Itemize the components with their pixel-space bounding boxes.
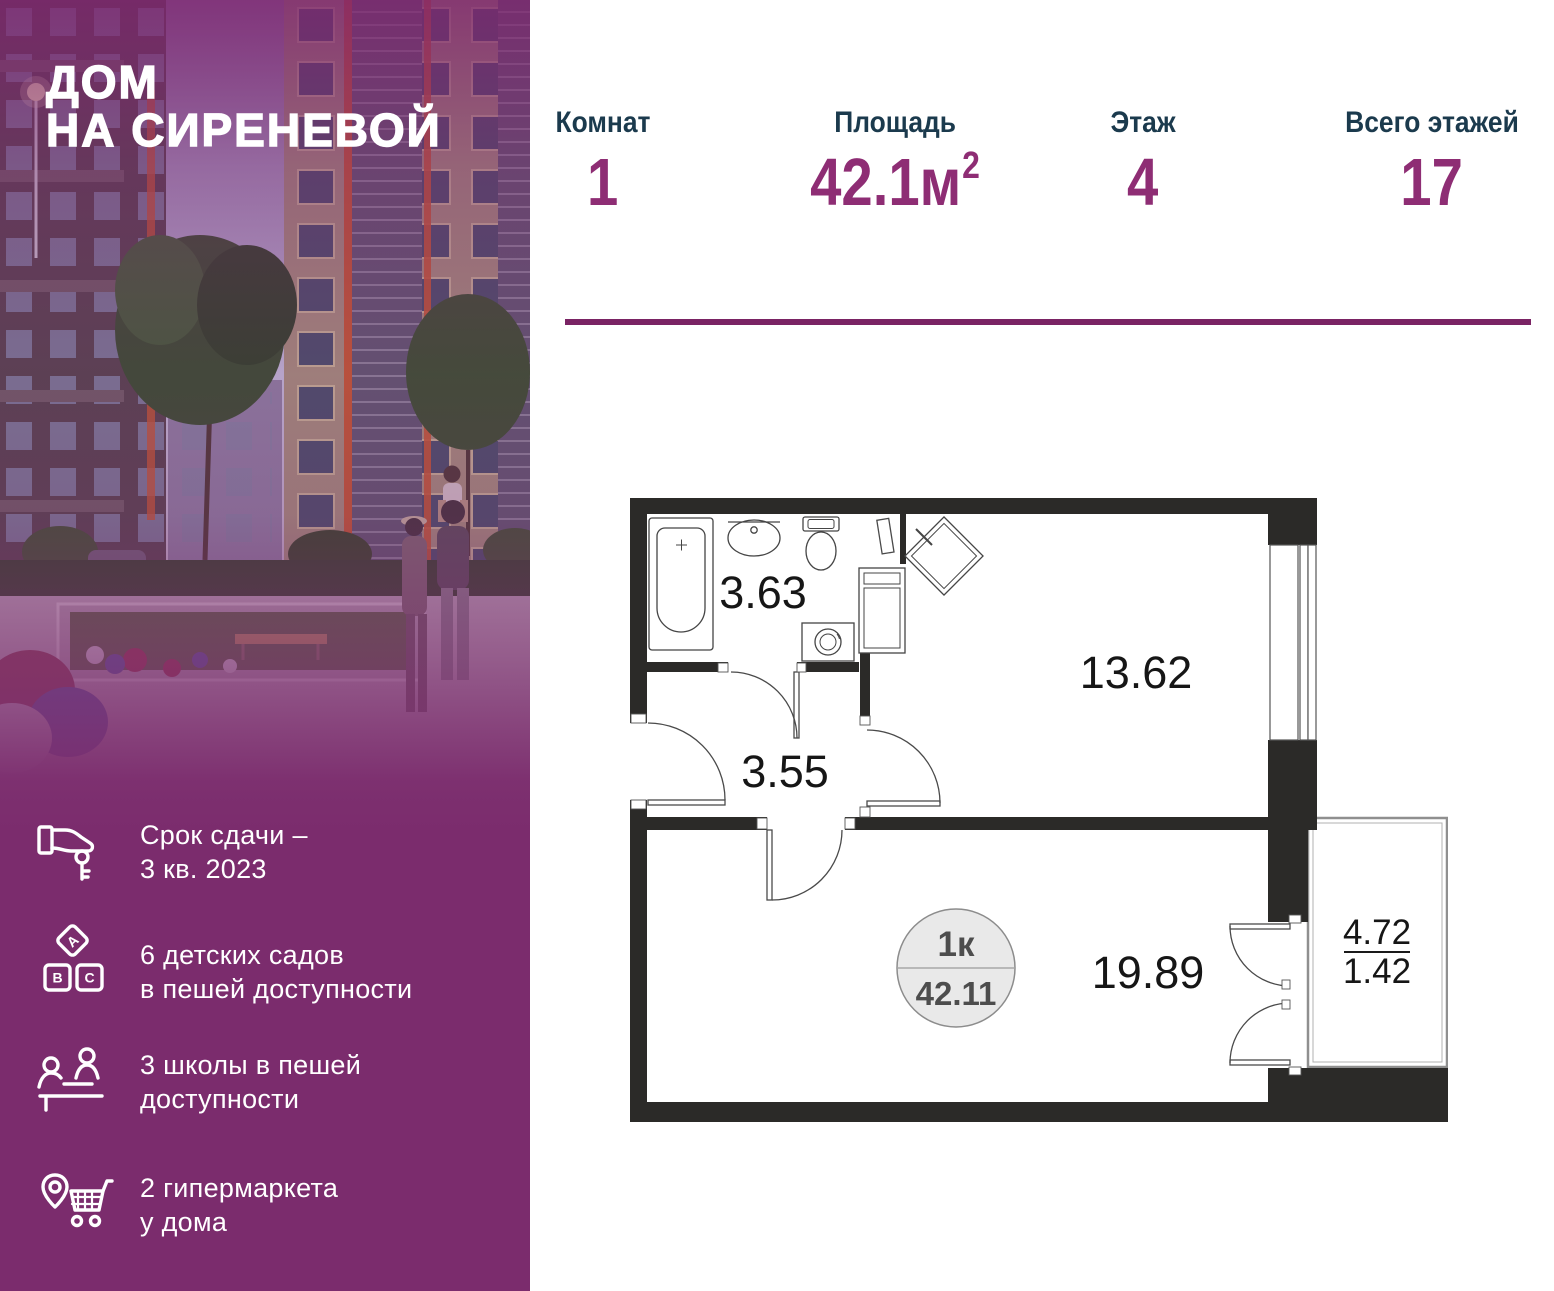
block-letter-c: С: [84, 970, 94, 986]
feature-text: 2 гипермаркета: [140, 1171, 338, 1205]
unit-badge: 1к 42.11: [897, 909, 1015, 1027]
store-location-icon: [32, 1162, 116, 1246]
bathroom-door-arc: [731, 672, 797, 738]
apartment-listing-page: ДОМ НА СИРЕНЕВОЙ Срок сдачи – 3 кв. 2023: [0, 0, 1554, 1291]
unit-type-label: 1к: [938, 925, 975, 964]
key-handover-icon: [32, 808, 116, 892]
fixtures: [649, 517, 983, 661]
feature-text: 3 школы в пешей: [140, 1048, 361, 1082]
feature-text: доступности: [140, 1082, 361, 1116]
entry-door-arc: [648, 723, 725, 800]
toilet-icon: [803, 517, 839, 570]
stat-total-floors: Всего этажей 17: [1333, 106, 1530, 216]
kitchen-door-arc: [867, 730, 940, 803]
balcony-door-upper-arc: [1230, 926, 1290, 986]
sink-icon: [728, 520, 780, 556]
stat-label: Всего этажей: [1333, 106, 1530, 140]
hall-door-arc: [772, 830, 842, 900]
feature-text: Срок сдачи –: [140, 818, 308, 852]
divider-line: [565, 319, 1531, 325]
bedroom-area-label: 19.89: [1092, 947, 1205, 998]
stat-label: Комнат: [549, 106, 657, 140]
washing-machine-icon: [802, 623, 854, 661]
balcony-door-upper-leaf: [1230, 924, 1290, 929]
niche-door-leaf: [877, 518, 894, 553]
bathtub-icon: [649, 518, 713, 650]
hall-door-leaf: [767, 830, 772, 900]
balcony-door-lower-leaf: [1230, 1060, 1290, 1065]
unit-total-area-label: 42.11: [916, 975, 997, 1012]
stat-value: 17: [1333, 149, 1530, 216]
logo-line-2: НА СИРЕНЕВОЙ: [46, 106, 442, 154]
feature-text: у дома: [140, 1205, 338, 1239]
logo-line-1: ДОМ: [46, 58, 442, 106]
balcony-labels: 4.72 1.42: [1343, 913, 1411, 991]
floor-plan: 3.63 3.55 13.62 19.89 1к 42.11 4.72 1.42: [618, 488, 1448, 1133]
stat-label: Этаж: [1106, 106, 1180, 140]
feature-text: 3 кв. 2023: [140, 852, 308, 886]
window: [1270, 545, 1316, 740]
bathroom-area-label: 3.63: [719, 567, 807, 618]
entry-door-leaf: [648, 800, 725, 805]
kitchen-area-label: 13.62: [1080, 647, 1193, 698]
stat-value: 1: [549, 149, 657, 216]
balcony-reduced-area-label: 1.42: [1343, 952, 1411, 991]
stat-area: Площадь 42.1м2: [794, 106, 996, 216]
balcony-full-area-label: 4.72: [1343, 913, 1411, 952]
kitchen-door-leaf: [867, 801, 940, 806]
block-letter-b: В: [52, 970, 62, 986]
feature-text: 6 детских садов: [140, 938, 412, 972]
water-heater-icon: [905, 517, 983, 595]
stat-floor: Этаж 4: [1106, 106, 1180, 216]
sidebar: ДОМ НА СИРЕНЕВОЙ Срок сдачи – 3 кв. 2023: [0, 0, 530, 1291]
feature-text: в пешей доступности: [140, 972, 412, 1006]
school-desk-icon: [32, 1040, 116, 1124]
block-letter-a: А: [63, 932, 81, 951]
stat-value: 4: [1106, 149, 1180, 216]
stat-label: Площадь: [794, 106, 996, 140]
cabinet-icon: [859, 568, 905, 653]
stat-value: 42.1м2: [794, 149, 996, 216]
stat-rooms: Комнат 1: [549, 106, 657, 216]
logo: ДОМ НА СИРЕНЕВОЙ: [46, 58, 442, 154]
abc-blocks-icon: А В С: [32, 920, 116, 1004]
balcony-door-lower-arc: [1230, 1003, 1290, 1063]
hallway-area-label: 3.55: [741, 746, 829, 797]
